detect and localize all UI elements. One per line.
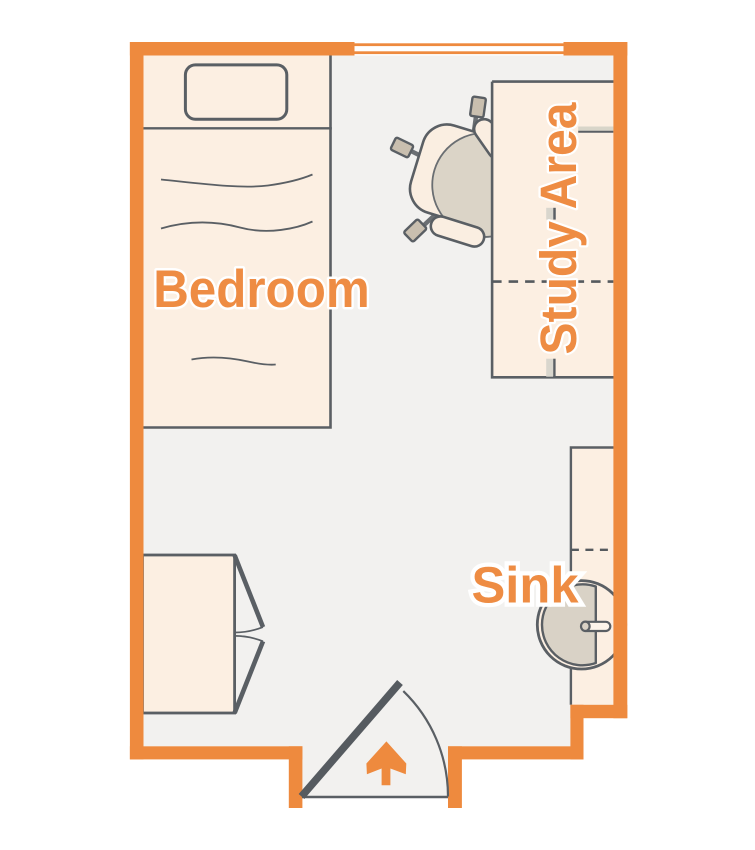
svg-text:Bedroom: Bedroom — [153, 260, 370, 319]
svg-text:Study Area: Study Area — [530, 102, 587, 355]
svg-text:Sink: Sink — [472, 557, 580, 614]
